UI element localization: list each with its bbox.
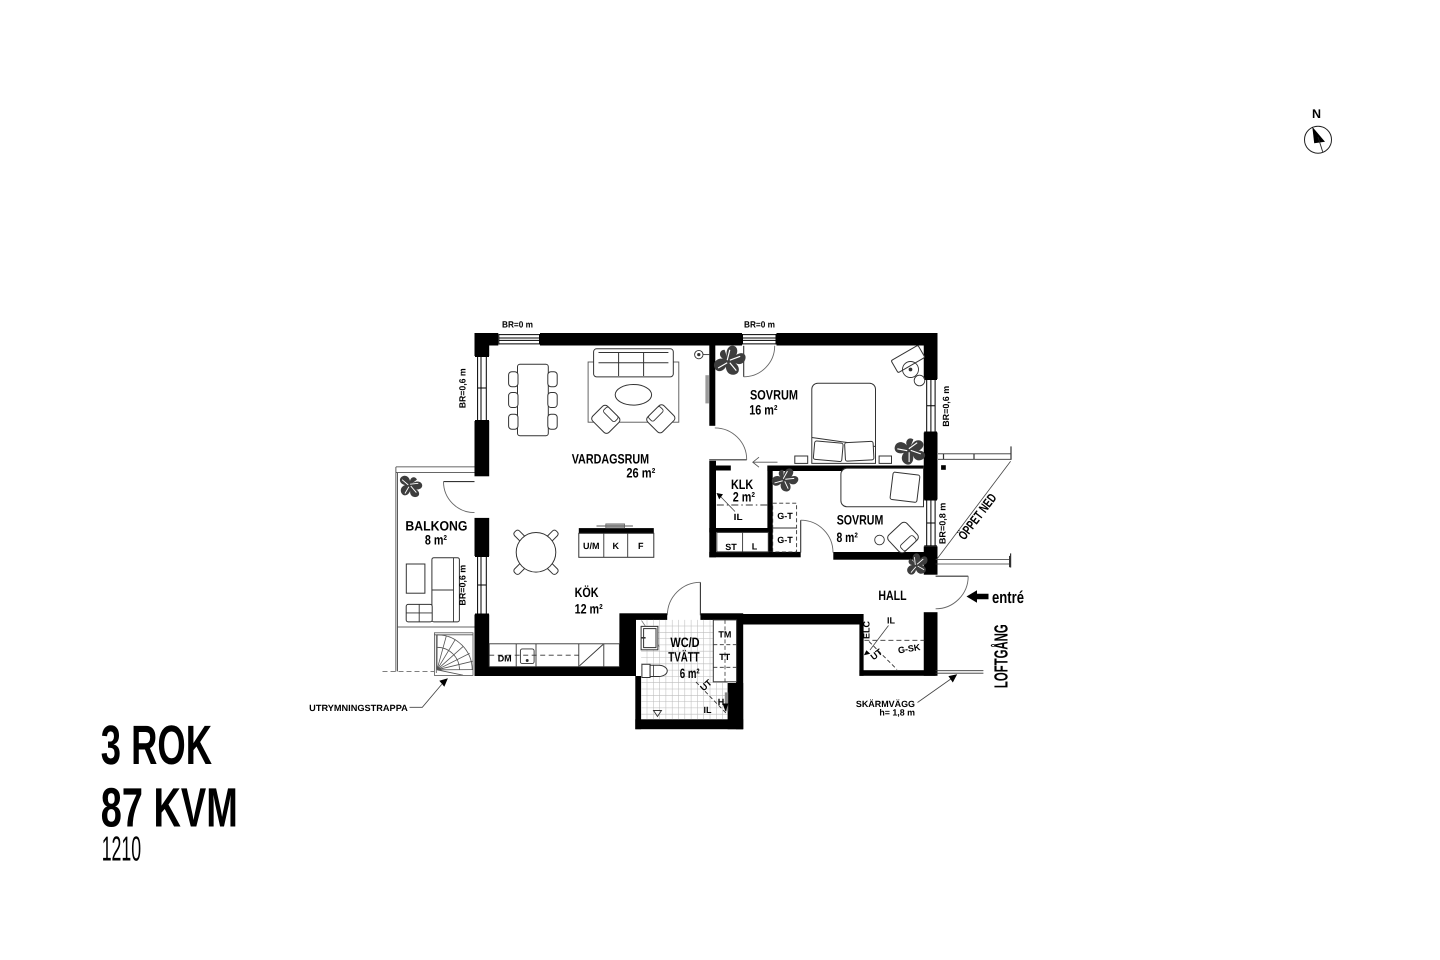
svg-text:BR=0,6 m: BR=0,6 m <box>458 368 468 408</box>
svg-text:TM: TM <box>718 630 731 640</box>
svg-text:BR=0 m: BR=0 m <box>502 320 533 330</box>
svg-text:ELC: ELC <box>862 620 872 639</box>
svg-text:IL: IL <box>887 615 896 625</box>
svg-text:87 KVM: 87 KVM <box>101 776 238 838</box>
svg-text:16 m²: 16 m² <box>749 403 778 418</box>
svg-text:KÖK: KÖK <box>575 585 599 600</box>
svg-text:SOVRUM: SOVRUM <box>837 513 884 528</box>
svg-text:WC/D: WC/D <box>670 635 699 650</box>
svg-text:BR=0 m: BR=0 m <box>744 320 775 330</box>
svg-text:HALL: HALL <box>878 588 906 603</box>
svg-text:BALKONG: BALKONG <box>405 518 467 533</box>
svg-text:3 ROK: 3 ROK <box>101 714 212 776</box>
svg-text:TT: TT <box>719 652 730 662</box>
svg-text:U/M: U/M <box>583 541 600 551</box>
svg-text:BR=0,8 m: BR=0,8 m <box>938 503 948 544</box>
svg-text:h= 1,8 m: h= 1,8 m <box>879 708 915 718</box>
svg-text:N: N <box>1312 107 1321 121</box>
svg-text:1210: 1210 <box>102 831 141 869</box>
svg-text:DM: DM <box>498 653 512 663</box>
svg-text:L: L <box>752 542 758 552</box>
svg-text:UTRYMNINGSTRAPPA: UTRYMNINGSTRAPPA <box>309 703 408 713</box>
svg-text:BR=0,6 m: BR=0,6 m <box>457 565 467 606</box>
svg-text:12 m²: 12 m² <box>575 602 603 617</box>
svg-text:LOFTGÅNG: LOFTGÅNG <box>991 624 1013 688</box>
svg-text:ST: ST <box>725 542 737 552</box>
svg-text:SOVRUM: SOVRUM <box>750 388 798 403</box>
svg-text:entré: entré <box>992 588 1024 607</box>
svg-text:G-T: G-T <box>777 511 793 521</box>
svg-text:TVÄTT: TVÄTT <box>668 650 700 665</box>
svg-text:26 m²: 26 m² <box>626 465 655 480</box>
svg-text:K: K <box>612 541 619 551</box>
svg-text:8 m²: 8 m² <box>425 532 447 547</box>
svg-text:F: F <box>638 541 644 551</box>
svg-text:8 m²: 8 m² <box>837 530 859 545</box>
svg-text:IL: IL <box>734 512 743 522</box>
svg-text:BR=0,6 m: BR=0,6 m <box>941 386 951 427</box>
svg-text:IL: IL <box>704 705 713 715</box>
svg-text:6 m²: 6 m² <box>680 666 700 681</box>
svg-text:2 m²: 2 m² <box>733 489 756 504</box>
svg-text:G-T: G-T <box>777 535 793 545</box>
